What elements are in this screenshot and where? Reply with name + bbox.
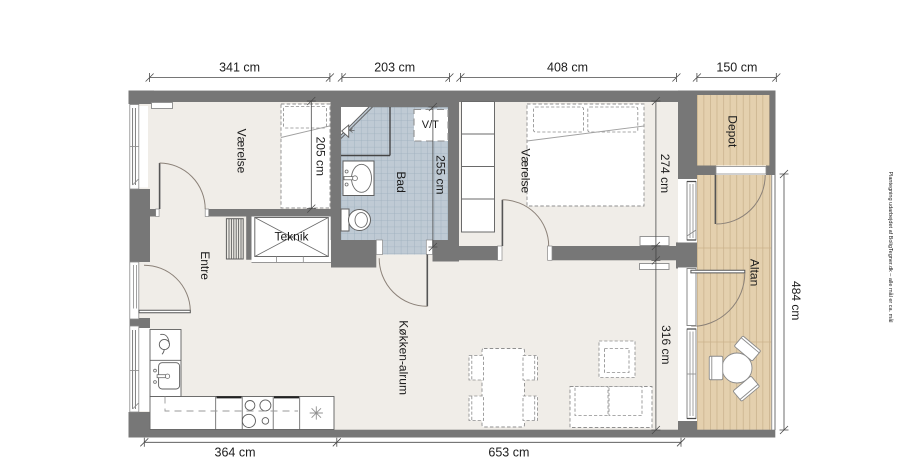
svg-text:255 cm: 255 cm xyxy=(434,155,448,194)
svg-text:Værelse: Værelse xyxy=(519,148,533,193)
svg-text:408 cm: 408 cm xyxy=(547,60,588,74)
svg-text:274 cm: 274 cm xyxy=(658,154,672,193)
svg-text:Teknik: Teknik xyxy=(274,230,309,244)
svg-text:341 cm: 341 cm xyxy=(219,60,260,74)
svg-text:653 cm: 653 cm xyxy=(488,446,529,460)
svg-text:Bad: Bad xyxy=(394,171,408,192)
svg-text:203 cm: 203 cm xyxy=(374,60,415,74)
svg-text:316 cm: 316 cm xyxy=(659,325,673,364)
svg-text:Køkken-alrum: Køkken-alrum xyxy=(397,320,411,395)
svg-text:484 cm: 484 cm xyxy=(789,281,803,320)
svg-text:Entre: Entre xyxy=(198,251,212,280)
svg-text:Værelse: Værelse xyxy=(235,129,249,174)
svg-text:V/T: V/T xyxy=(422,119,439,131)
svg-text:Depot: Depot xyxy=(726,115,740,148)
svg-text:Altan: Altan xyxy=(748,259,762,286)
svg-text:Plantegning udarbejdet af Boli: Plantegning udarbejdet af BoligTegner.dk… xyxy=(887,171,894,322)
svg-text:150 cm: 150 cm xyxy=(716,60,757,74)
svg-text:205 cm: 205 cm xyxy=(314,137,328,176)
svg-text:364 cm: 364 cm xyxy=(215,446,256,460)
